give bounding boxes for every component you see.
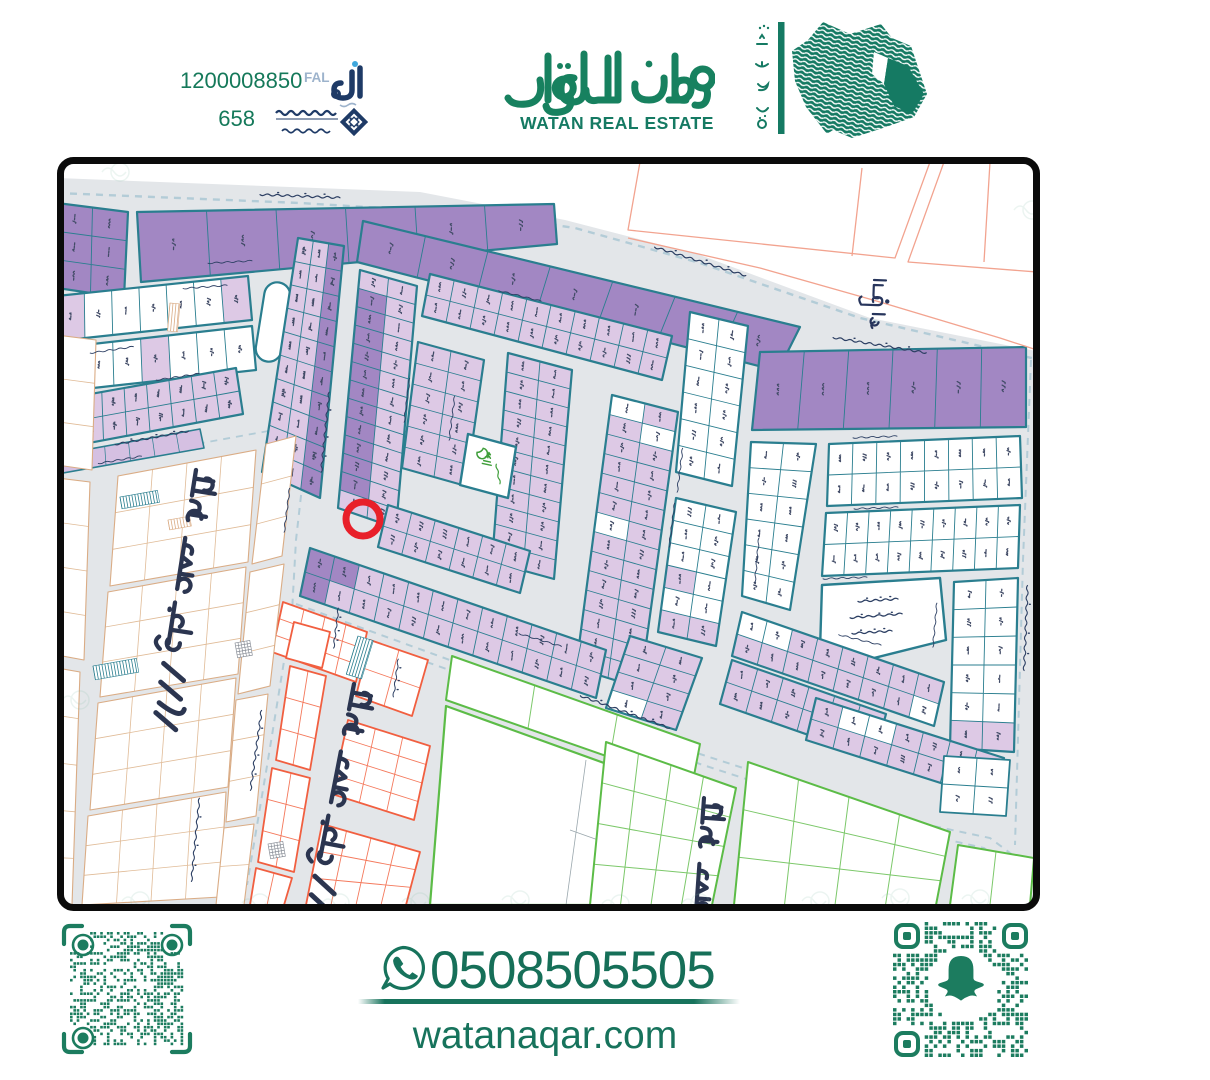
- svg-text:FAL: FAL: [304, 70, 330, 85]
